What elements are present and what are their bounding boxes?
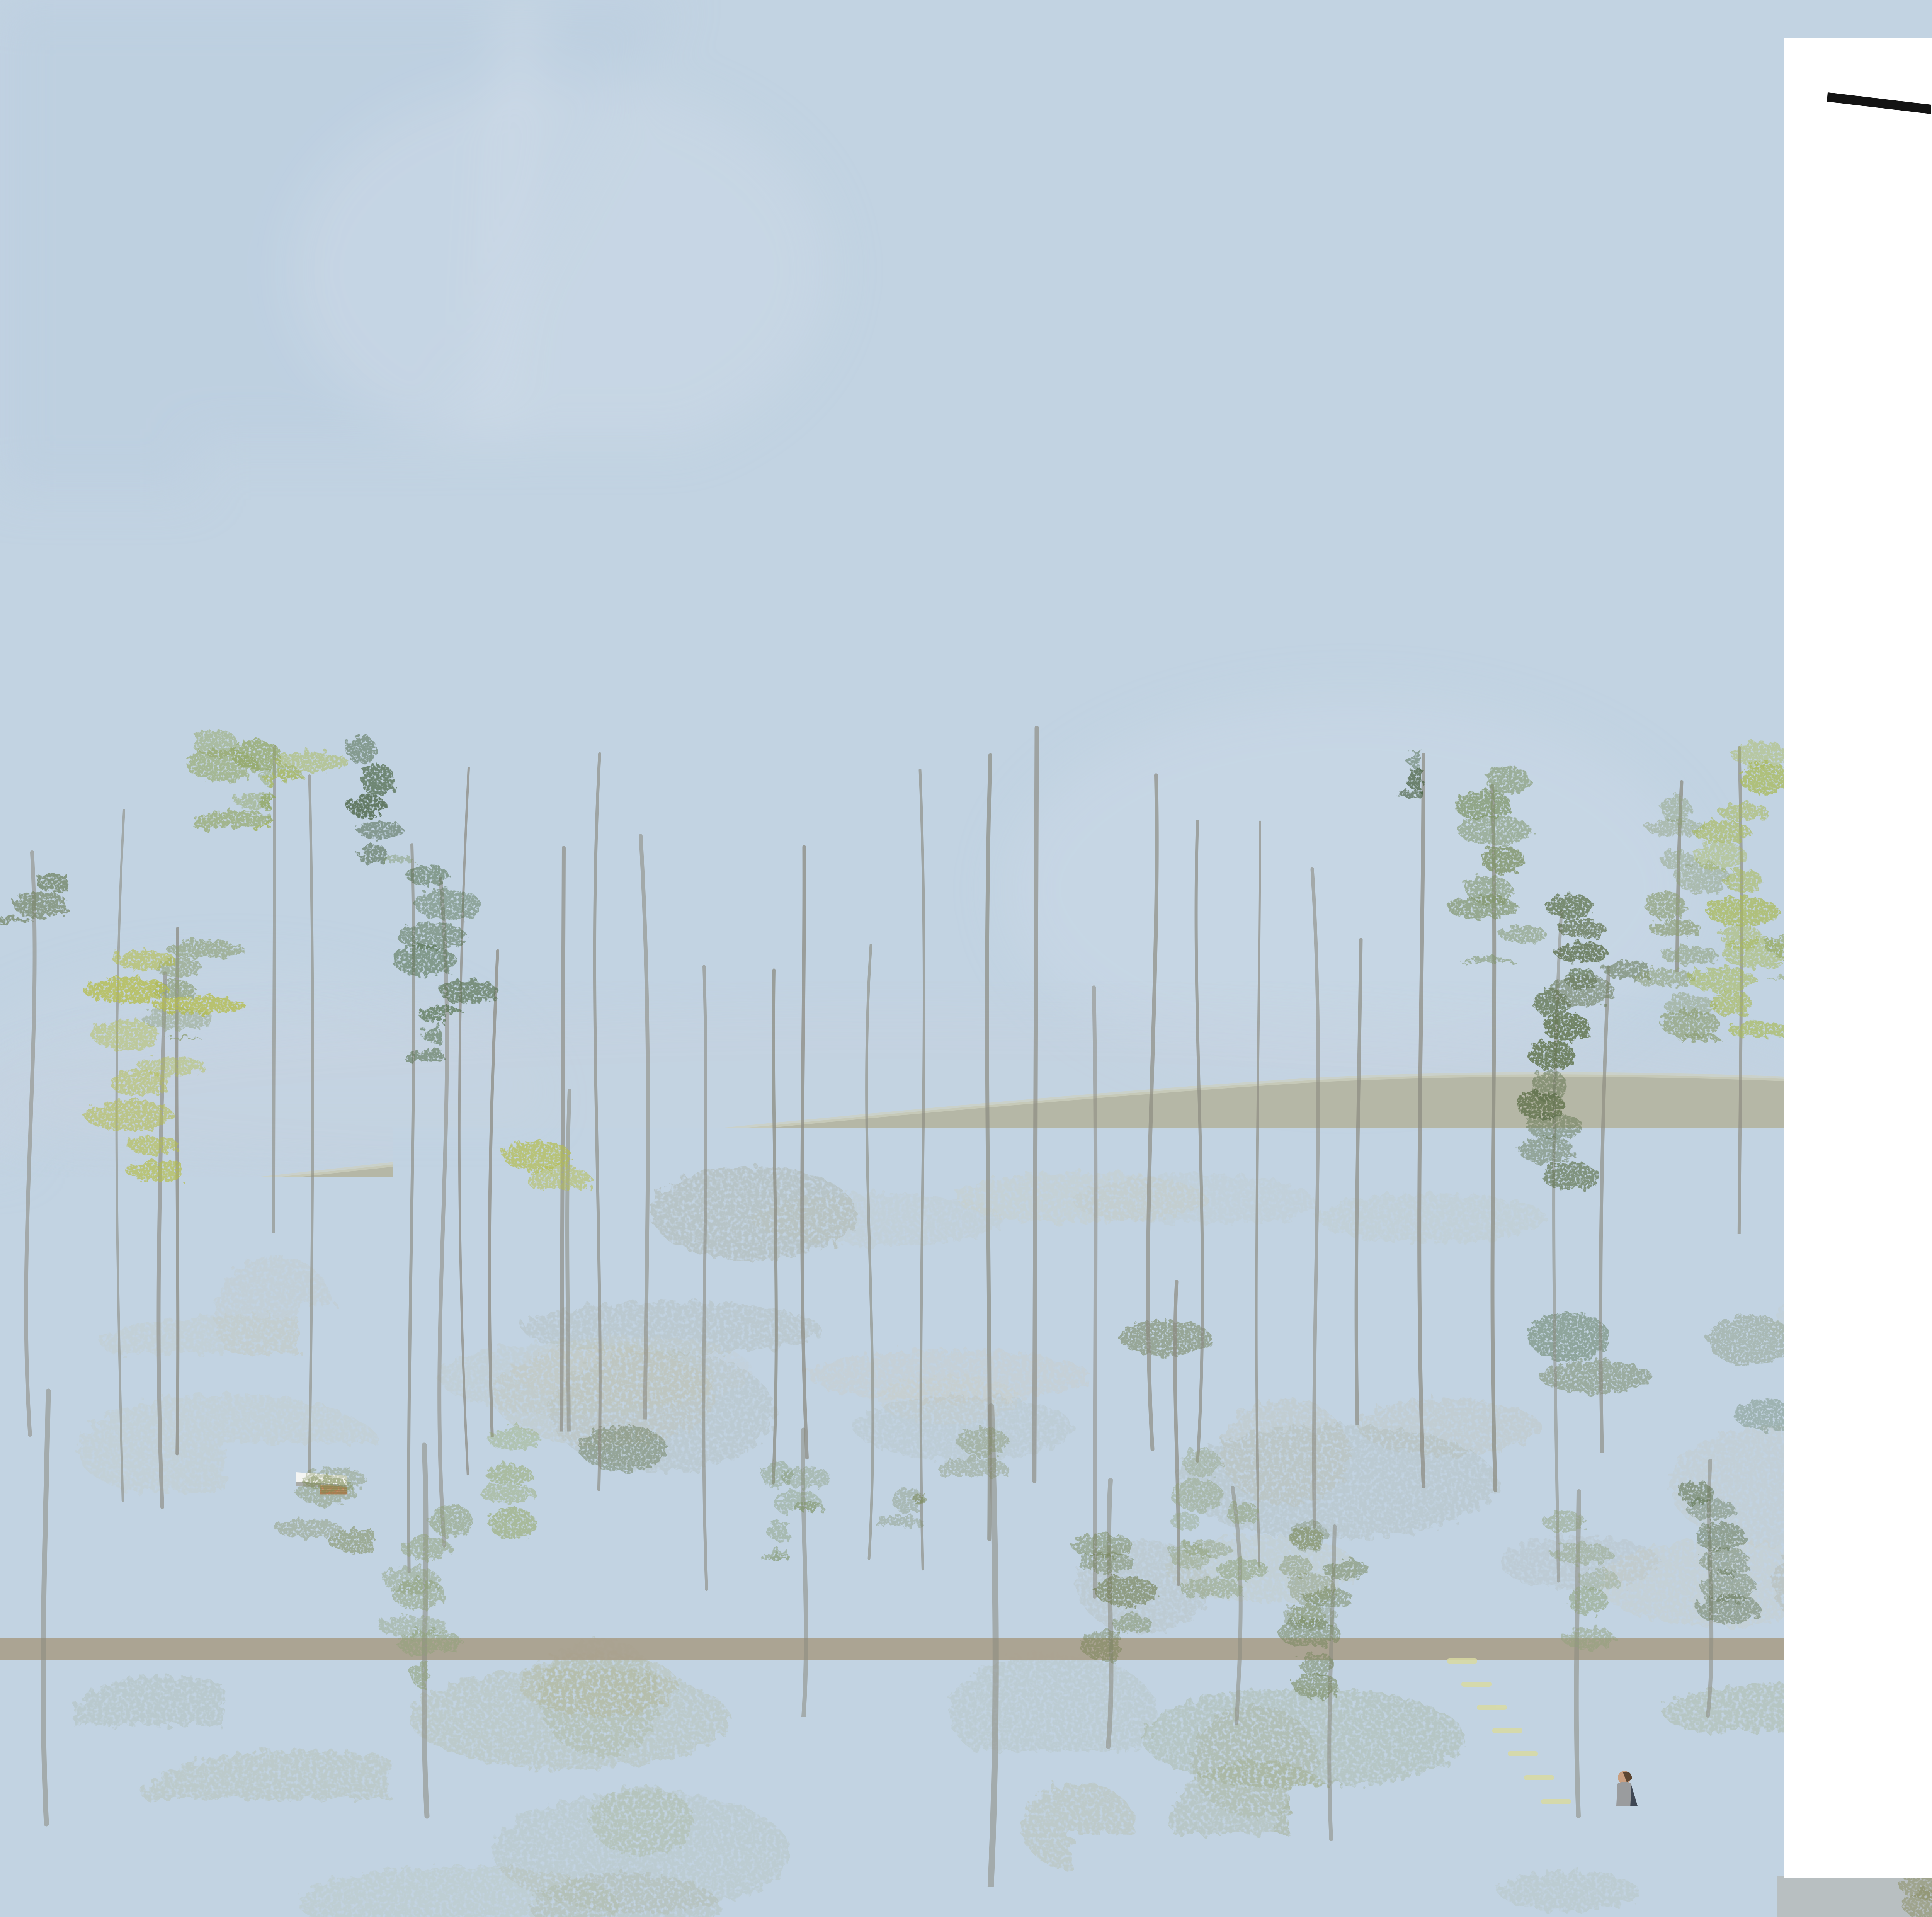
svg-text:0: 0 — [1839, 1798, 1848, 1817]
svg-text:5m: 5m — [1882, 1798, 1904, 1817]
svg-text:10m: 10m — [1923, 1798, 1932, 1817]
